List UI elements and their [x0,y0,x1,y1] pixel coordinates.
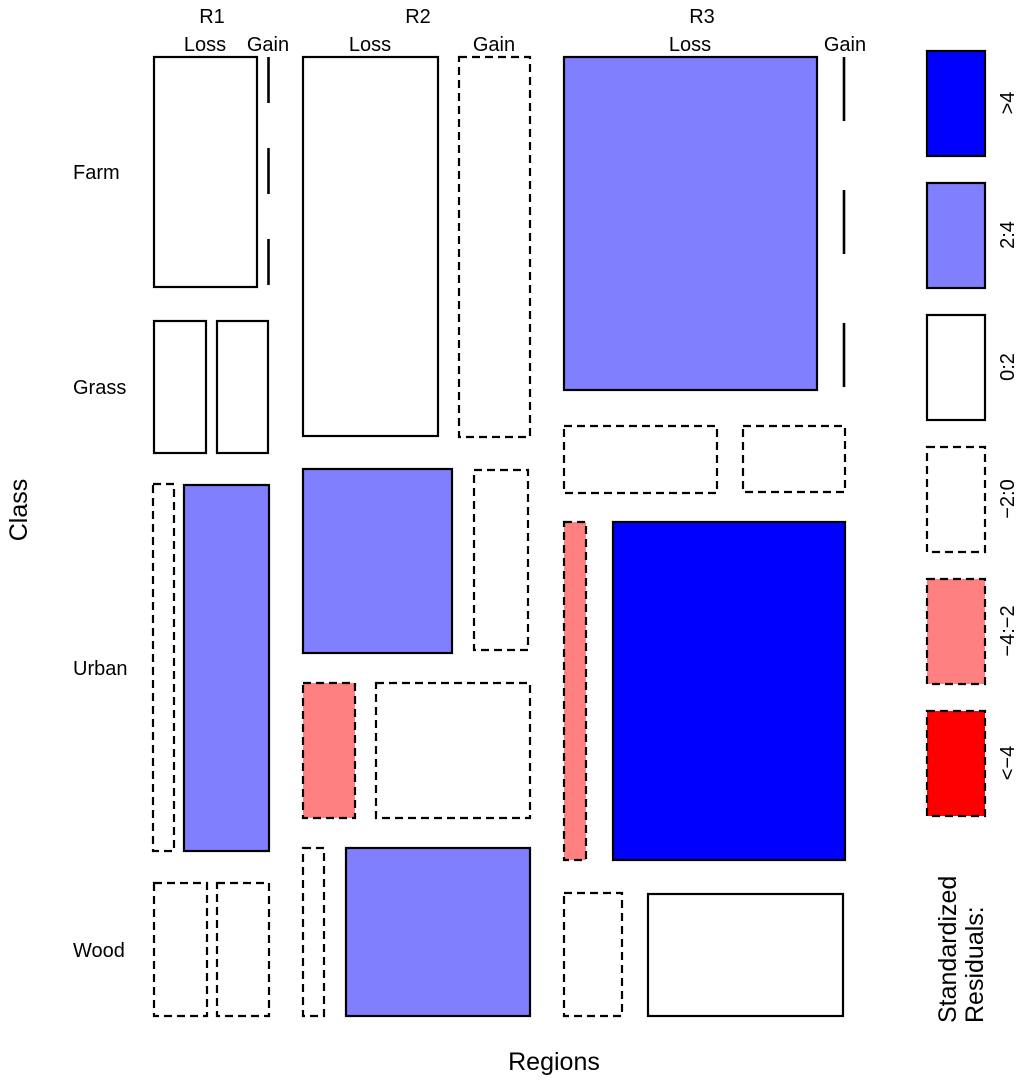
col-header-r1: R1 [199,6,225,28]
x-axis-title: Regions [508,1048,600,1076]
cell-r2-urban-gain [376,683,530,818]
cell-r2-urban-loss [303,683,355,818]
cells-layer [153,57,845,1016]
legend-label-gt4: >4 [997,92,1019,115]
cell-r1-urban-gain [184,485,269,851]
row-label-grass: Grass [73,377,126,399]
legend-box-3 [927,447,985,552]
col-header-r3: R3 [689,6,715,28]
row-label-wood: Wood [73,940,125,962]
cell-r1-wood-gain [217,883,269,1016]
legend-title-line1: Standardized [934,876,962,1023]
cell-r3-wood-loss [564,893,622,1016]
legend-title: Standardized Residuals: [934,876,989,1023]
subcol-label-r1-loss: Loss [184,34,226,56]
legend-label-2-4: 2:4 [997,221,1019,249]
cell-r3-urban-gain [613,522,845,860]
cell-r2-grass-gain [474,470,528,650]
legend-title-line2: Residuals: [961,906,989,1023]
cell-r3-grass-loss [564,426,717,493]
subcol-label-r1-gain: Gain [247,34,289,56]
cell-r1-grass-gain [217,321,268,453]
cell-r3-urban-loss [564,522,586,860]
cell-r1-grass-loss [154,321,206,453]
cell-r3-grass-gain [743,426,845,492]
legend-box-5 [927,711,985,816]
cell-r3-wood-gain [648,894,843,1016]
legend-label-m4-m2: −4:−2 [997,605,1019,656]
row-label-farm: Farm [73,162,120,184]
subcol-label-r3-gain: Gain [824,34,866,56]
cell-r2-wood-loss [303,848,324,1016]
subcol-label-r3-loss: Loss [669,34,711,56]
legend-box-1 [927,183,985,288]
cell-r1-urban-loss [153,484,174,851]
row-label-urban: Urban [73,658,127,680]
cell-r2-grass-loss [303,469,452,653]
legend-label-m2-0: −2:0 [997,479,1019,518]
legend-box-0 [927,51,985,156]
legend-label-0-2: 0:2 [997,353,1019,381]
subcol-label-r2-loss: Loss [349,34,391,56]
cell-r2-farm-loss [303,57,438,436]
mosaic-plot: R1 R2 R3 Loss Gain Loss Gain Loss Gain F… [0,0,1024,1083]
legend-boxes-layer [927,51,985,816]
legend-box-2 [927,315,985,420]
y-axis-title: Class [5,479,33,542]
cell-r1-farm-loss [154,57,257,287]
legend-label-ltm4: <−4 [997,746,1019,780]
cell-r2-farm-gain [459,57,530,437]
subcol-label-r2-gain: Gain [473,34,515,56]
cell-r2-wood-gain [346,848,530,1016]
col-header-r2: R2 [405,6,431,28]
cell-r1-wood-loss [154,883,207,1016]
legend-box-4 [927,579,985,684]
cell-r3-farm-loss [564,57,817,390]
